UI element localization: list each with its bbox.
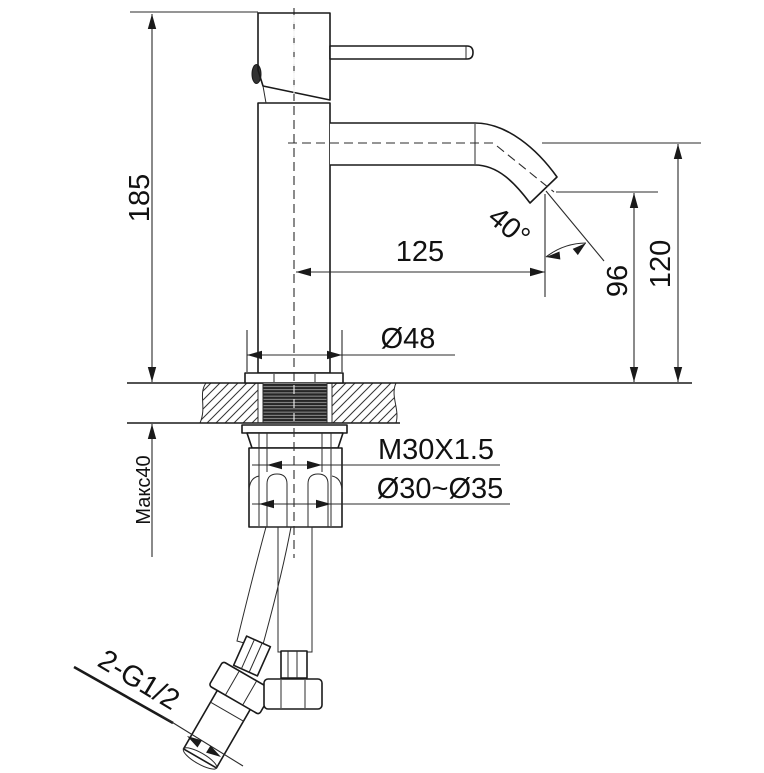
- hex-nut-body: [264, 679, 322, 709]
- collar-body: [281, 651, 307, 678]
- drawing-canvas: 185 Макс40 125 40° 96 120: [0, 0, 764, 773]
- dim-label-base-diameter: Ø48: [381, 323, 436, 355]
- hose-crimp-collar-right: [281, 651, 307, 678]
- lever-handle: [330, 46, 473, 59]
- dim-label-total-height: 185: [124, 174, 156, 222]
- threaded-shank: [263, 383, 327, 423]
- dim-label-spout-height: 120: [645, 240, 677, 288]
- faucet-body: [245, 103, 343, 383]
- thread-section: [263, 383, 327, 423]
- deck-hatch-right: [332, 383, 397, 423]
- washer-cone: [247, 433, 343, 448]
- dim-label-outlet-height: 96: [602, 265, 634, 297]
- dim-label-spout-reach: 125: [396, 236, 444, 268]
- dim-label-mounting-thread: M30X1.5: [378, 434, 494, 466]
- dim-label-mounting-hole: Ø30~Ø35: [377, 473, 504, 505]
- faucet-technical-drawing: 185 Макс40 125 40° 96 120: [0, 0, 764, 773]
- dim-label-max-deck: Макс40: [133, 455, 155, 524]
- deck-hatch-left: [200, 383, 258, 423]
- hose-hex-nut-right: [264, 679, 322, 709]
